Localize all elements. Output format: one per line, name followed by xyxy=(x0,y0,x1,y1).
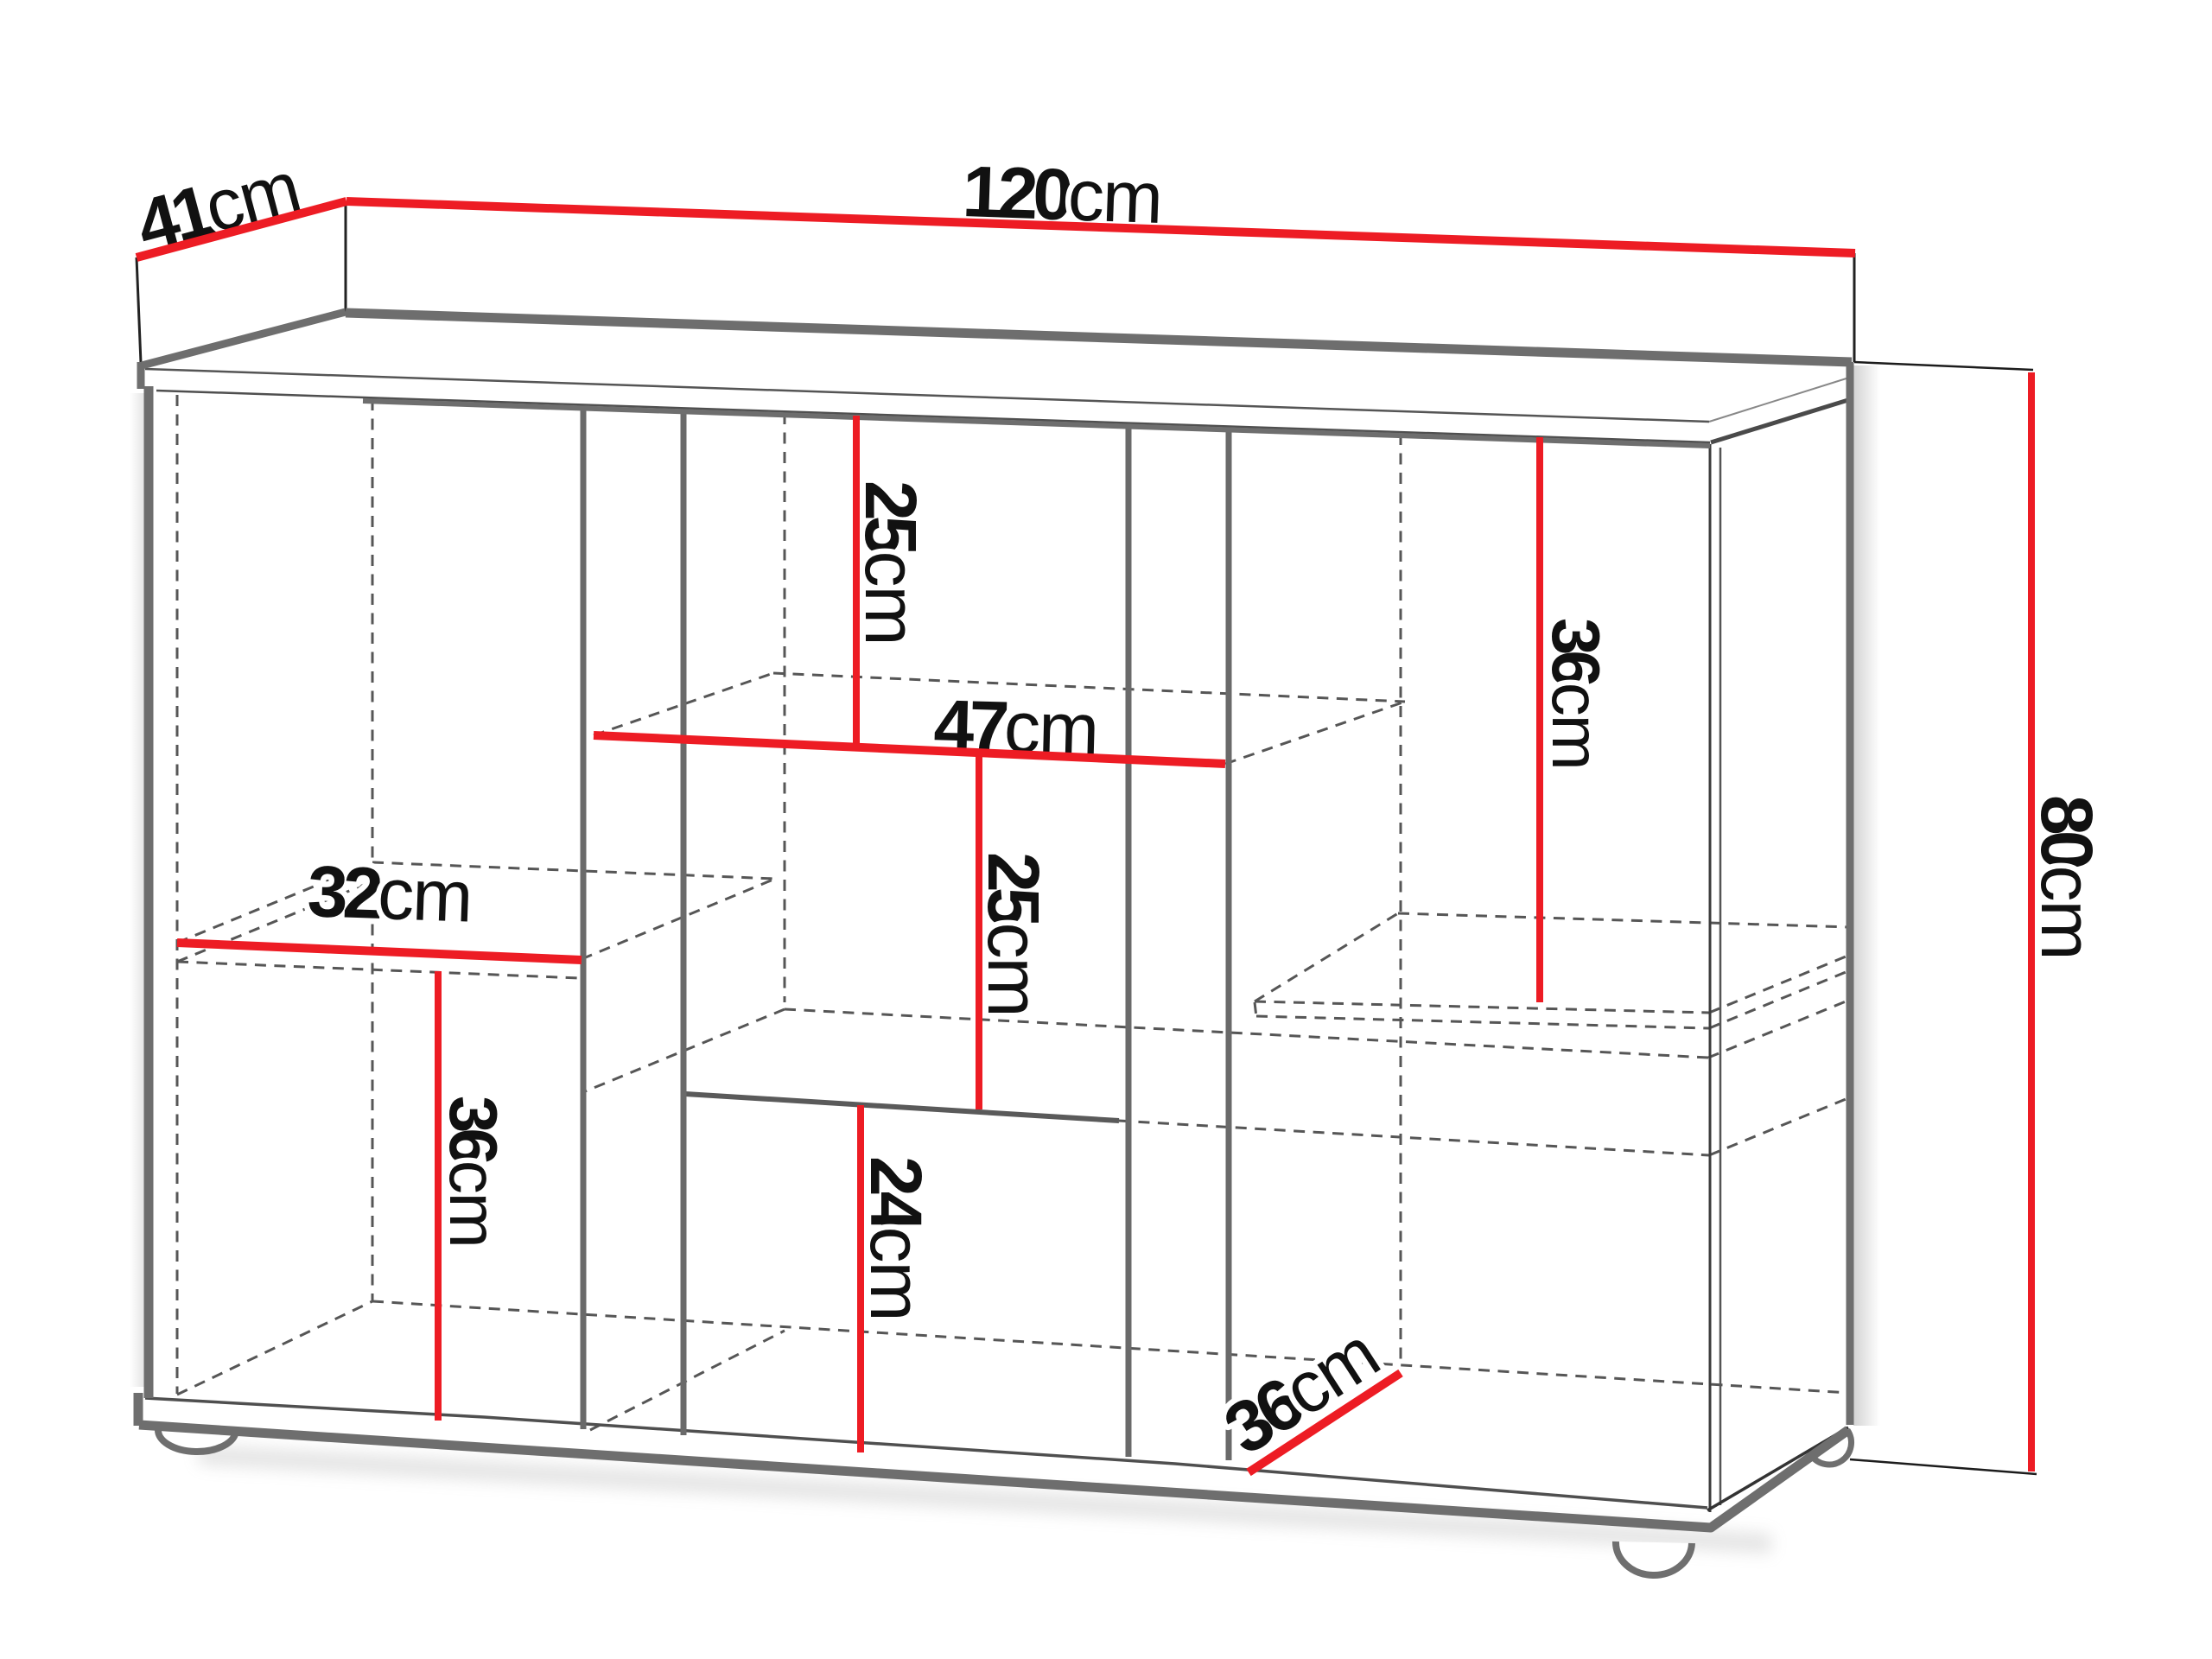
svg-text:80cm: 80cm xyxy=(2026,795,2107,958)
svg-text:25cm: 25cm xyxy=(850,480,931,644)
svg-text:36cm: 36cm xyxy=(1538,618,1614,769)
svg-text:24cm: 24cm xyxy=(855,1156,937,1319)
svg-text:25cm: 25cm xyxy=(973,852,1054,1015)
svg-text:36cm: 36cm xyxy=(435,1096,512,1247)
svg-text:32cm: 32cm xyxy=(306,850,473,938)
